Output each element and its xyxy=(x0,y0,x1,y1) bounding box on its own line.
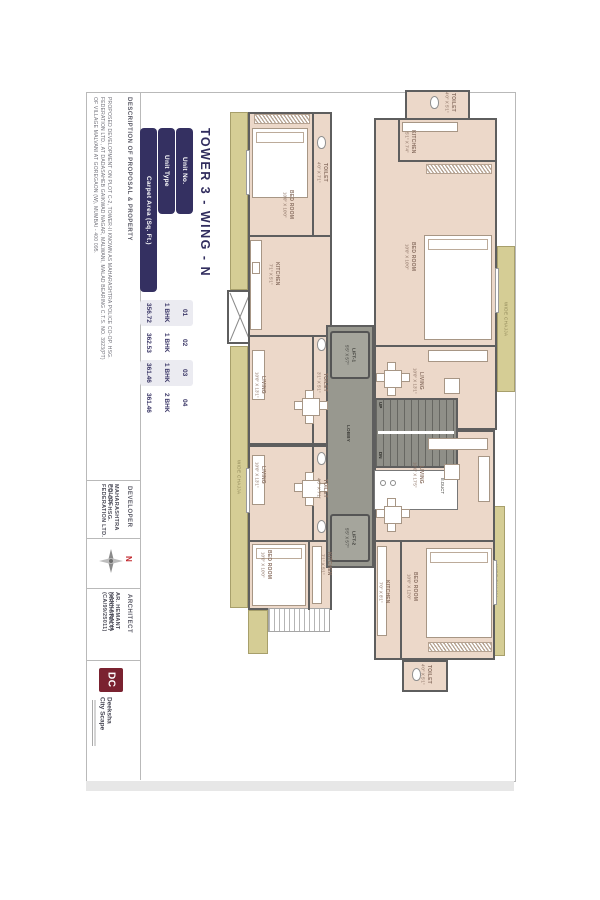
logo-icon: DC xyxy=(99,668,123,692)
logo-initials: DC xyxy=(106,672,117,687)
lift-2: LIFT-2 5'5" X 5'7" xyxy=(330,514,370,562)
toilet-fixture-icon xyxy=(317,136,326,149)
table-cell: 361.46 xyxy=(140,360,157,386)
wall xyxy=(308,540,310,610)
room-label-living: LIVING10'0" X 13'1" xyxy=(254,372,266,397)
window xyxy=(493,560,497,605)
kitchen-sink-icon xyxy=(252,262,260,274)
wall xyxy=(398,118,400,162)
dining-table xyxy=(376,498,410,532)
description-line: PROPOSED DEVELOPMENT ON PLOT C-2, TOWER-… xyxy=(106,97,112,477)
architect-label: ARCHITECT xyxy=(126,594,132,654)
window xyxy=(495,268,499,313)
description-line: OF VILLAGE MALVANI AT GOREGAON (W), MUMB… xyxy=(92,97,98,477)
cell-divider xyxy=(86,480,140,481)
bed xyxy=(252,128,308,198)
table-cell: 04 xyxy=(176,390,193,416)
sheet-shadow xyxy=(86,781,514,791)
room-label-bedroom: BED ROOM10'0" X 12'0" xyxy=(406,572,418,601)
dining-table xyxy=(376,362,410,396)
table-cell: 01 xyxy=(176,300,193,326)
developer-name: CO-OP. HSG. FEDERATION LTD. xyxy=(100,484,112,538)
room-label-living: LIVING10'0" X 13'1" xyxy=(254,462,266,487)
drawing-sheet: DESCRIPTION OF PROPOSAL & PROPERTY PROPO… xyxy=(0,0,600,900)
table-cell: 2 BHK xyxy=(158,390,175,416)
cell-divider xyxy=(86,660,140,661)
lift-1: LIFT-1 5'5" X 5'7" xyxy=(330,331,370,379)
coffee-table xyxy=(444,378,460,394)
lift-1-dims: 5'5" X 5'7" xyxy=(345,345,350,365)
wall xyxy=(374,540,495,542)
bed xyxy=(424,235,492,340)
wall xyxy=(248,540,332,542)
toilet-fixture-icon xyxy=(317,520,326,533)
room-label-toilet: TOILET4'0" X 5'1" xyxy=(444,92,456,112)
dining-table xyxy=(294,390,328,424)
room-label-bedroom: BED ROOM10'0" X 10'0" xyxy=(260,550,272,579)
sofa xyxy=(428,438,488,450)
north-label: N xyxy=(124,556,133,562)
duct-label: E.DUCT xyxy=(440,478,445,494)
bed xyxy=(426,548,492,638)
wall xyxy=(248,335,332,337)
table-header-unit-type: Unit Type xyxy=(158,128,175,214)
table-cell: 1 BHK xyxy=(158,330,175,356)
table-header-unit-no: Unit No. xyxy=(176,128,193,214)
duct-circle-icon xyxy=(390,480,396,486)
architect-name: (ARCHITECT) (CA/99/25011) xyxy=(101,592,113,656)
room-label-kitchen: KITCHEN7'0" X 8'1" xyxy=(378,580,390,604)
table-cell: 1 BHK xyxy=(158,360,175,386)
chajja-strip: WIDE CHAJJA xyxy=(497,246,515,392)
table-cell: 1 BHK xyxy=(158,300,175,326)
room-label-kitchen: KITCHEN7'1" X 5'1" xyxy=(320,552,332,576)
table-cell: 03 xyxy=(176,360,193,386)
room-label-living: LIVING10'0" X 13'1" xyxy=(412,368,424,393)
room-label-toilet: TOILET4'0" X 7'1" xyxy=(316,162,328,182)
room-label-bedroom: BED ROOM10'0" X 10'0" xyxy=(282,190,294,219)
lift-1-label: LIFT-1 xyxy=(350,345,356,365)
table-header-carpet-area: Carpet Area (Sq. Ft.) xyxy=(140,128,157,292)
logo-name-line2: City Scape xyxy=(97,697,105,767)
room-label-living: LIVING10'0" X 17'5" xyxy=(412,462,424,487)
stair-dn-label: DN xyxy=(378,452,383,459)
cell-divider xyxy=(86,538,140,539)
coffee-table xyxy=(444,464,460,480)
lift-2-label: LIFT-2 xyxy=(350,528,356,548)
wall xyxy=(374,345,497,347)
room-label-kitchen: KITCHEN5'1" X 7'4" xyxy=(404,130,416,154)
table-cell: 362.53 xyxy=(140,330,157,356)
wardrobe-hatch xyxy=(428,642,492,652)
room-label-kitchen: KITCHEN7'1" X 5'1" xyxy=(268,262,280,286)
description-line: FEDERATION LTD., AT DADASAHEB GAIKWAD NA… xyxy=(99,97,105,477)
stair-handrail xyxy=(378,431,454,434)
compass-icon xyxy=(98,548,124,574)
window xyxy=(246,150,250,195)
table-cell: 356.72 xyxy=(140,300,157,326)
window xyxy=(246,468,250,513)
sofa xyxy=(478,456,490,502)
table-cell: 02 xyxy=(176,330,193,356)
room-label-toilet: TOILET4'0" X 5'1" xyxy=(420,664,432,684)
description-label: DESCRIPTION OF PROPOSAL & PROPERTY xyxy=(126,97,132,467)
wardrobe-hatch xyxy=(254,114,310,124)
wardrobe-hatch xyxy=(426,164,492,174)
toilet-fixture-icon xyxy=(430,96,439,109)
lobby-label: LOBBY xyxy=(344,425,350,442)
room-label-toilet: TOILET3'1" X 5'1" xyxy=(316,372,328,392)
chajja-strip xyxy=(230,112,248,290)
toilet-fixture-icon xyxy=(317,452,326,465)
wall xyxy=(398,160,497,162)
lift-2-dims: 5'5" X 5'7" xyxy=(345,528,350,548)
sofa xyxy=(428,350,488,362)
logo-microtext xyxy=(92,700,96,746)
balcony xyxy=(268,608,330,632)
cell-divider xyxy=(86,588,140,589)
toilet-fixture-icon xyxy=(317,338,326,351)
duct-circle-icon xyxy=(380,480,386,486)
sheet-title: TOWER 3 - WING - N xyxy=(198,128,212,278)
kitchen-platform xyxy=(250,240,262,330)
chajja-strip xyxy=(248,610,268,654)
room-label-bedroom: BED ROOM10'0" X 10'0" xyxy=(404,242,416,271)
table-cell: 361.46 xyxy=(140,390,157,416)
wall xyxy=(312,112,314,235)
wall xyxy=(400,540,402,660)
developer-label: DEVELOPER xyxy=(126,486,132,536)
wall xyxy=(248,235,332,237)
stair-up-label: UP xyxy=(378,402,383,408)
room-label-toilet: TOILET4'0" X 7'1" xyxy=(316,478,328,498)
